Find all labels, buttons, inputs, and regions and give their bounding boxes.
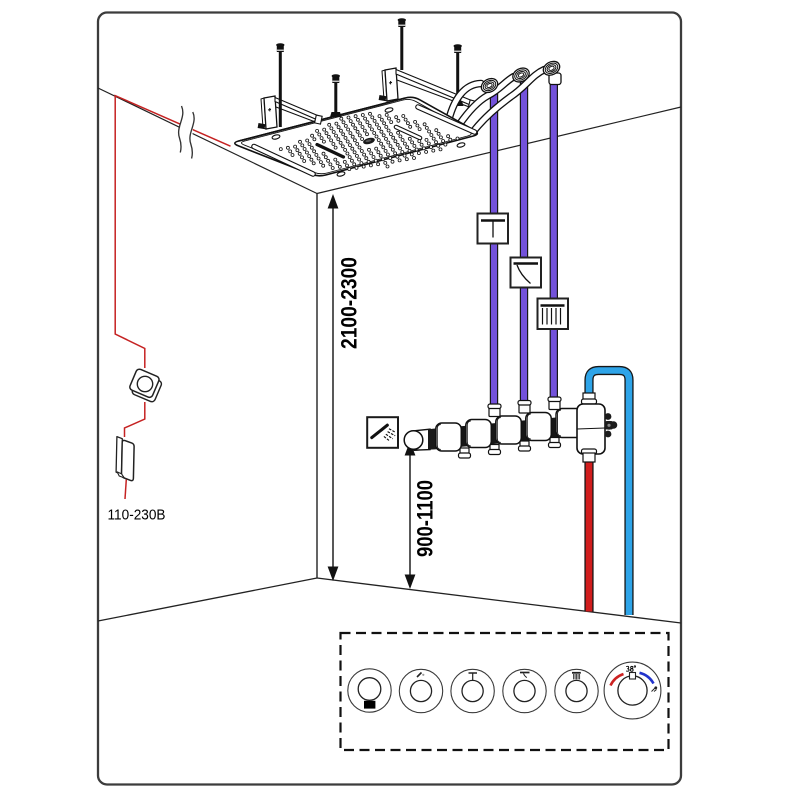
- svg-text:900-1100: 900-1100: [413, 480, 438, 557]
- svg-text:2100-2300: 2100-2300: [337, 257, 362, 349]
- svg-text:110-230B: 110-230B: [108, 508, 166, 524]
